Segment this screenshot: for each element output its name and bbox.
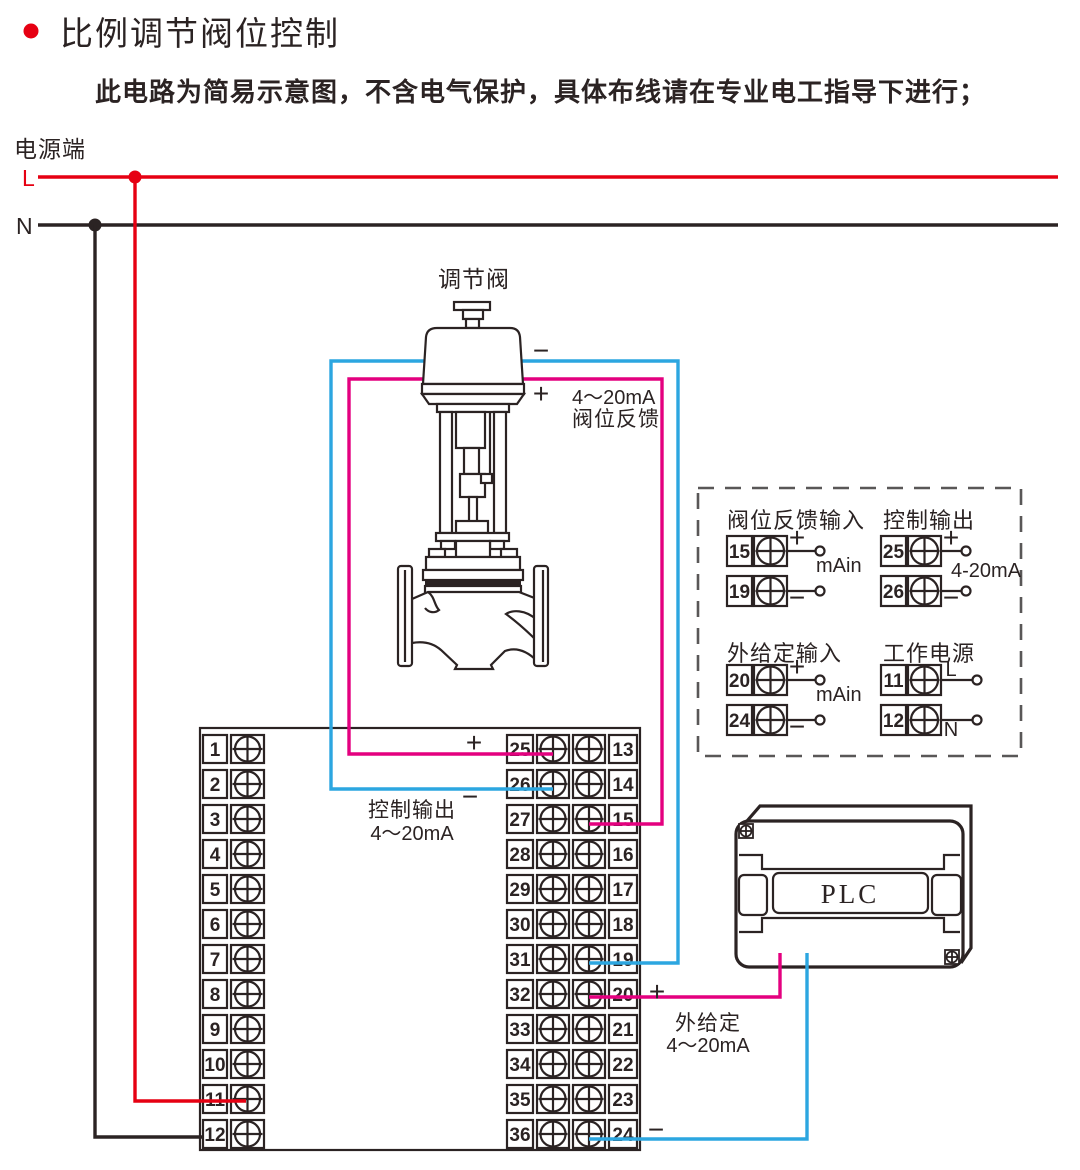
terminal-number: 34 xyxy=(509,1055,531,1076)
terminal-number: 23 xyxy=(612,1090,633,1111)
terminal-number: 18 xyxy=(612,915,633,936)
wiring-diagram: 比例调节阀位控制 此电路为简易示意图，不含电气保护，具体布线请在专业电工指导下进… xyxy=(0,0,1080,1170)
lead-terminal-dot xyxy=(962,547,971,556)
terminal-number: 19 xyxy=(729,582,750,603)
terminal-25-plus-sign: + xyxy=(466,727,482,758)
page-title: 比例调节阀位控制 xyxy=(60,15,340,52)
valve-minus-sign: − xyxy=(533,335,549,366)
terminal-number: 22 xyxy=(612,1055,633,1076)
mid-terminal-block: 2513261427152816291730183119322033213422… xyxy=(507,735,637,1148)
group-title: 工作电源 xyxy=(883,641,975,666)
lead-terminal-dot xyxy=(973,676,982,685)
terminal-number: 31 xyxy=(509,950,531,971)
plc-corner-screw-icon xyxy=(739,824,753,838)
plc-label: PLC xyxy=(821,879,880,909)
lead-terminal-dot xyxy=(973,716,982,725)
terminal-number: 28 xyxy=(509,845,530,866)
controller-panel: 123456789101112 251326142715281629173018… xyxy=(200,728,640,1150)
terminal-number: 21 xyxy=(612,1020,634,1041)
terminal-number: 27 xyxy=(509,810,530,831)
control-output-note-line2: 4～20mA xyxy=(370,823,454,845)
range-label: mAin xyxy=(816,684,862,706)
terminal-description-panel: 阀位反馈输入15+19−mAin 控制输出25+26−4-20mA 外给定输入2… xyxy=(698,488,1022,756)
setpoint-note-line2: 4～20mA xyxy=(666,1035,750,1057)
terminal-number: 32 xyxy=(509,985,530,1006)
polarity-sign: − xyxy=(789,582,805,613)
polarity-sign: + xyxy=(789,651,805,682)
polarity-sign: + xyxy=(789,522,805,553)
group-title: 控制输出 xyxy=(883,508,975,533)
neutral-to-terminal-12-wire xyxy=(95,225,204,1137)
terminal-24-minus-sign: − xyxy=(648,1114,664,1145)
terminal-number: 30 xyxy=(509,915,530,936)
terminal-number: 3 xyxy=(210,810,221,831)
polarity-sign: N xyxy=(944,719,958,741)
valve-label: 调节阀 xyxy=(438,266,510,292)
terminal-number: 6 xyxy=(210,915,221,936)
terminal-number: 16 xyxy=(612,845,633,866)
group-title: 外给定输入 xyxy=(727,641,842,666)
terminal-number: 14 xyxy=(612,775,634,796)
terminal-number: 25 xyxy=(509,740,531,761)
terminal-number: 4 xyxy=(210,845,221,866)
terminal-number: 1 xyxy=(210,740,221,761)
terminal-26-minus-sign: − xyxy=(462,781,478,812)
terminal-number: 24 xyxy=(612,1125,634,1146)
terminal-number: 7 xyxy=(210,950,221,971)
line-n-label: N xyxy=(16,213,34,239)
terminal-number: 20 xyxy=(729,671,750,692)
terminal-number: 2 xyxy=(210,775,221,796)
valve-plus-sign: + xyxy=(533,378,549,409)
terminal-number: 13 xyxy=(612,740,633,761)
group-external-setpoint-input: 外给定输入20+24−mAin xyxy=(727,641,862,742)
polarity-sign: − xyxy=(789,711,805,742)
control-valve-drawing xyxy=(398,302,548,669)
terminal-number: 36 xyxy=(509,1125,530,1146)
valve-body xyxy=(412,592,537,669)
control-output-note-line1: 控制输出 xyxy=(368,799,456,822)
terminal-number: 15 xyxy=(612,810,634,831)
line-l-label: L xyxy=(22,165,36,191)
power-terminal-label: 电源端 xyxy=(14,136,86,162)
terminal-number: 35 xyxy=(509,1090,531,1111)
polarity-sign: − xyxy=(943,582,959,613)
feedback-note-line2: 阀位反馈 xyxy=(572,408,660,431)
terminal-number: 25 xyxy=(883,542,905,563)
terminal-number: 19 xyxy=(612,950,633,971)
live-to-terminal-11-wire xyxy=(135,177,246,1101)
terminal-number: 5 xyxy=(210,880,221,901)
feedback-note-line1: 4～20mA xyxy=(572,387,656,409)
terminal-number: 26 xyxy=(883,582,904,603)
group-valve-feedback-input: 阀位反馈输入15+19−mAin xyxy=(727,508,865,613)
plc-box: PLC xyxy=(736,806,971,967)
group-control-output: 控制输出25+26−4-20mA xyxy=(881,508,1022,613)
lead-terminal-dot xyxy=(816,587,825,596)
terminal-number: 17 xyxy=(612,880,633,901)
terminal-number: 12 xyxy=(204,1125,225,1146)
polarity-sign: + xyxy=(943,522,959,553)
terminal-number: 26 xyxy=(509,775,530,796)
terminal-number: 24 xyxy=(729,711,751,732)
wiring-diagram-page: 比例调节阀位控制 此电路为简易示意图，不含电气保护，具体布线请在专业电工指导下进… xyxy=(0,0,1080,1170)
range-label: mAin xyxy=(816,555,862,577)
plc-corner-screw-icon xyxy=(945,950,959,964)
terminal-number: 33 xyxy=(509,1020,530,1041)
left-terminal-block: 123456789101112 xyxy=(203,735,264,1148)
polarity-sign: L xyxy=(945,659,956,681)
terminal-20-plus-sign: + xyxy=(649,976,665,1007)
pipe-flange-right xyxy=(534,566,548,666)
terminal-number: 10 xyxy=(204,1055,225,1076)
setpoint-note-line1: 外给定 xyxy=(675,1012,741,1035)
terminal-number: 11 xyxy=(883,671,904,692)
terminal-number: 12 xyxy=(883,711,904,732)
terminal-number: 8 xyxy=(210,985,221,1006)
bullet-icon xyxy=(24,24,39,39)
group-working-power: 工作电源11L12N xyxy=(881,641,982,741)
lead-terminal-dot xyxy=(816,716,825,725)
terminal-number: 29 xyxy=(509,880,530,901)
page-subtitle: 此电路为简易示意图，不含电气保护，具体布线请在专业电工指导下进行； xyxy=(95,77,986,107)
terminal-number: 9 xyxy=(210,1020,221,1041)
terminal-number: 15 xyxy=(729,542,751,563)
actuator-body xyxy=(423,328,523,384)
range-label: 4-20mA xyxy=(951,560,1022,582)
lead-terminal-dot xyxy=(962,587,971,596)
